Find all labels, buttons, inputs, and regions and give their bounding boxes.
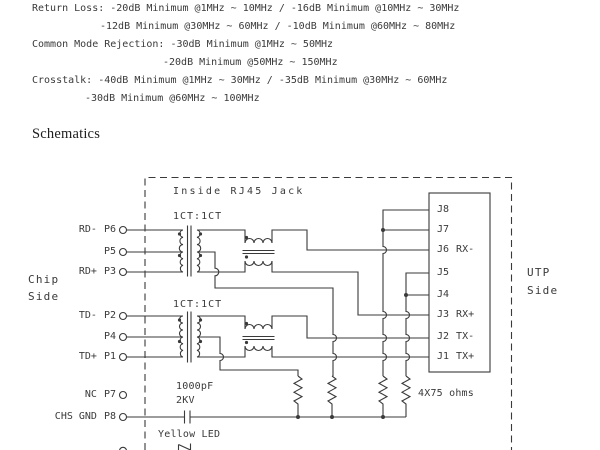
ratio-label-rx: 1CT:1CT: [173, 211, 222, 223]
chip-pin-p6: RD-P6: [26, 224, 116, 236]
jack-pinbox: [429, 193, 490, 372]
transformer-rx: [179, 226, 200, 277]
rx-to-j6: [272, 230, 429, 250]
enclosure-label: Inside RJ45 Jack: [173, 186, 305, 198]
jack-pin-j2: J2TX-: [437, 331, 474, 343]
chip-pin-terminals: [120, 227, 127, 450]
junction-dots: [296, 228, 408, 419]
choke-tx: [243, 325, 275, 351]
ratio-label-tx: 1CT:1CT: [173, 299, 222, 311]
chip-pin-p5: P5: [26, 246, 116, 258]
j5-j4-column: [406, 273, 429, 376]
capacitor: [185, 411, 191, 424]
chip-pin-p4: P4: [26, 331, 116, 343]
datasheet-page: Return Loss: -20dB Minimum @1MHz ~ 10MHz…: [0, 0, 600, 450]
choke-rx: [243, 239, 275, 266]
resistor-network: [294, 376, 410, 417]
led-symbol: [179, 444, 191, 450]
chip-pin-p2: TD-P2: [26, 310, 116, 322]
chip-pin-wires: [127, 230, 184, 357]
jack-pin-j8: J8: [437, 204, 456, 216]
jack-pin-j4: J4: [437, 289, 456, 301]
jack-pin-j1: J1TX+: [437, 351, 474, 363]
chip-pin-p8: CHS GNDP8: [26, 411, 116, 423]
chip-pin-p1: TD+P1: [26, 351, 116, 363]
capacitor-value-label: 1000pF: [176, 381, 213, 393]
jack-pin-j7: J7: [437, 224, 456, 236]
led-label: Yellow LED: [158, 429, 220, 441]
jack-pin-j5: J5: [437, 267, 456, 279]
capacitor-rating-label: 2KV: [176, 395, 195, 407]
jack-pin-j6: J6RX-: [437, 244, 474, 256]
rx-secondary-links: [197, 230, 245, 272]
jack-pin-j3: J3RX+: [437, 309, 474, 321]
chip-pin-p3: RD+P3: [26, 266, 116, 278]
chip-pin-p7: NCP7: [26, 389, 116, 401]
resistor-value-label: 4X75 ohms: [418, 388, 474, 400]
